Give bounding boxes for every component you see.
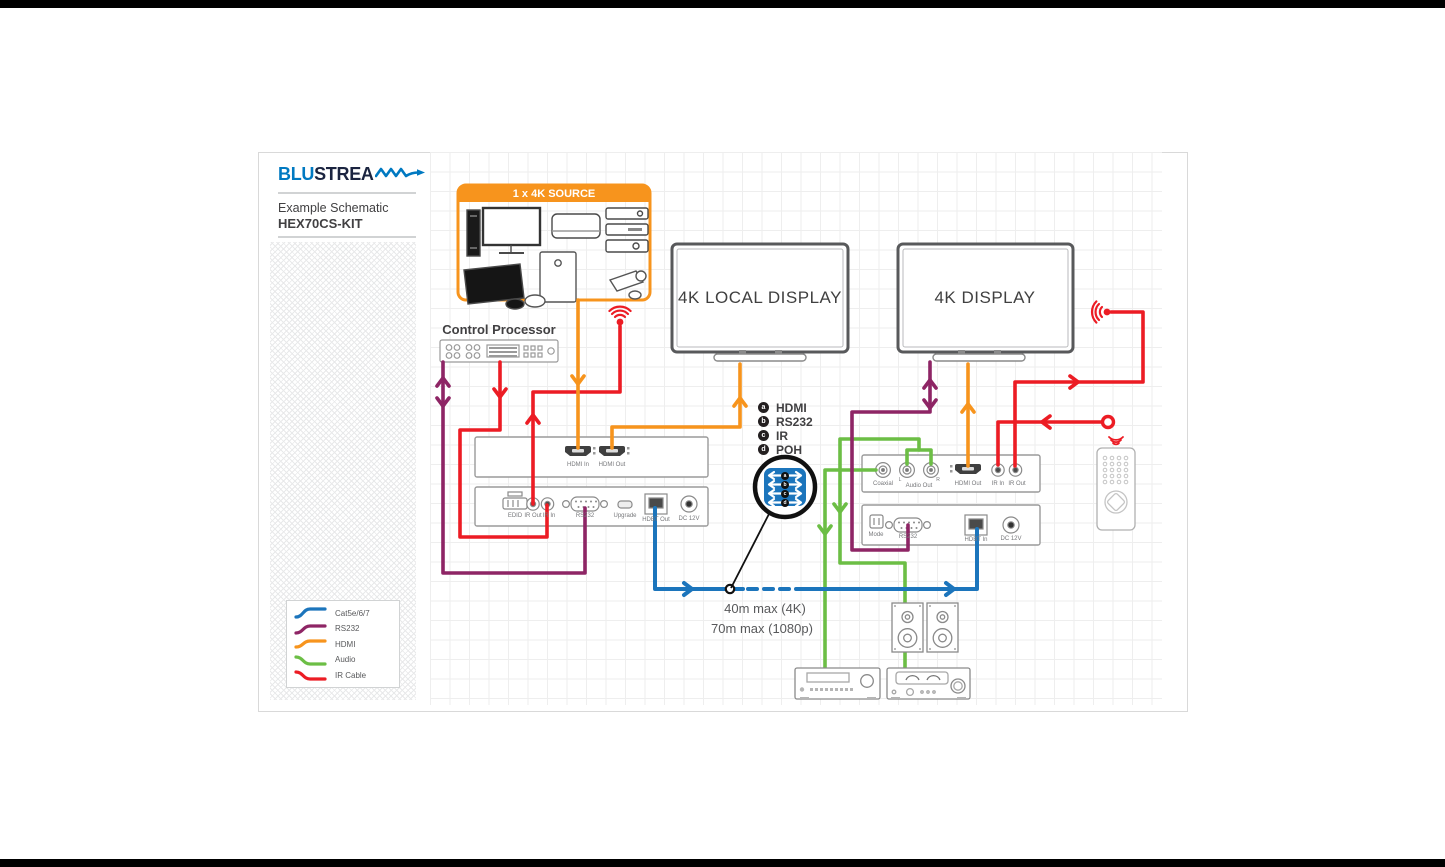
bottom-letterbox-bar (0, 859, 1445, 867)
speakers (892, 603, 958, 652)
ir-emitter-display-icon (1092, 301, 1110, 322)
tx-hdmi-in-label: HDMI In (567, 462, 589, 468)
cable-legend-row: Audio (294, 653, 392, 667)
title-panel: BLUSTREA Example Schematic HEX70CS-KIT C… (258, 152, 430, 712)
cable-wave-icon (294, 622, 328, 636)
cable-legend-row: HDMI (294, 637, 392, 651)
logo-stream-text: STREA (314, 164, 374, 184)
cable-wave-icon (294, 668, 328, 682)
cable-wave-icon (294, 637, 328, 651)
rx-rs232-label: RS232 (899, 534, 917, 540)
ir-emitter-source-icon (609, 307, 630, 326)
magnifier-key-d: d (781, 499, 789, 507)
legend-label-hdmi: HDMI (776, 401, 807, 415)
control-processor-device (440, 340, 558, 362)
cable-legend: Cat5e/6/7 RS232 HDMI Audio IR Cable (286, 600, 400, 688)
local-display-label: 4K LOCAL DISPLAY (678, 288, 842, 308)
divider (278, 236, 416, 238)
legend-key-b: b (758, 416, 769, 427)
rx-hdbt-in-label: HDBT In (965, 537, 988, 543)
legend-label-poh: POH (776, 443, 802, 457)
cable-wave-icon (294, 606, 328, 620)
remote-control (1097, 448, 1135, 530)
rx-coaxial-label: Coaxial (873, 481, 893, 487)
rx-audio-r-label: R (936, 477, 940, 483)
av-receiver (795, 668, 880, 699)
logo-wave-icon (375, 165, 427, 180)
tx-dc-label: DC 12V (678, 516, 699, 522)
cable-legend-label: Cat5e/6/7 (335, 609, 370, 618)
rx-audio-out-label: Audio Out (906, 483, 933, 489)
divider (278, 192, 416, 194)
cable-wave-icon (294, 653, 328, 667)
cable-legend-label: RS232 (335, 624, 359, 633)
cable-legend-row: IR Cable (294, 668, 392, 682)
cable-legend-row: Cat5e/6/7 (294, 606, 392, 620)
legend-label-ir: IR (776, 429, 788, 443)
distance-note-line2: 70m max (1080p) (711, 621, 813, 636)
legend-key-c: c (758, 430, 769, 441)
cable-legend-label: IR Cable (335, 671, 366, 680)
rx-dc-label: DC 12V (1000, 536, 1021, 542)
schematic-subtitle: Example Schematic (278, 201, 388, 215)
source-box (458, 185, 650, 309)
rx-mode-label: Mode (868, 532, 883, 538)
rx-audio-l-label: L (899, 477, 902, 483)
magnifier-key-b: b (781, 481, 789, 489)
mode-dip-switch (870, 515, 883, 528)
tx-ir-in-label: IR In (543, 513, 556, 519)
rx-ir-in-label: IR In (992, 481, 1005, 487)
tx-hdbt-out-label: HDBT Out (642, 517, 670, 523)
transmitter-rear-panel (475, 487, 708, 526)
rx-ir-out-label: IR Out (1008, 481, 1025, 487)
legend-key-d: d (758, 444, 769, 455)
legend-key-a: a (758, 402, 769, 413)
diagram-area: 1 x 4K SOURCE Control Processor 4K LOCAL… (430, 152, 1162, 705)
cable-legend-label: Audio (335, 655, 355, 664)
cable-magnifier (731, 457, 815, 588)
cable-legend-row: RS232 (294, 622, 392, 636)
stereo-amplifier (887, 668, 970, 699)
display-label: 4K DISPLAY (934, 288, 1035, 308)
distance-note-line1: 40m max (4K) (724, 601, 806, 616)
logo-blu-text: BLU (278, 164, 314, 184)
remote-ir-waves-icon (1109, 437, 1123, 444)
tx-upgrade-label: Upgrade (613, 513, 636, 519)
magnifier-key-c: c (781, 490, 789, 498)
transmitter-front-panel (475, 437, 708, 477)
control-processor-label: Control Processor (442, 322, 555, 337)
tx-ir-out-label: IR Out (524, 513, 541, 519)
tx-hdmi-out-label: HDMI Out (599, 462, 626, 468)
cable-legend-label: HDMI (335, 640, 355, 649)
upgrade-usb-port (618, 501, 632, 508)
tx-edid-label: EDID (508, 513, 522, 519)
magnifier-key-a: a (781, 472, 789, 480)
ir-receiver-icon (1103, 417, 1114, 428)
edid-dip-switch (503, 498, 527, 509)
source-devices-icons (464, 208, 648, 309)
blustream-logo: BLUSTREA (278, 164, 427, 185)
legend-label-rs232: RS232 (776, 415, 813, 429)
model-name: HEX70CS-KIT (278, 216, 363, 231)
schematic-page: BLUSTREA Example Schematic HEX70CS-KIT C… (0, 0, 1445, 867)
source-box-title: 1 x 4K SOURCE (513, 188, 596, 200)
tx-rs232-label: RS232 (576, 513, 594, 519)
rx-hdmi-out-label: HDMI Out (955, 481, 982, 487)
top-letterbox-bar (0, 0, 1445, 8)
